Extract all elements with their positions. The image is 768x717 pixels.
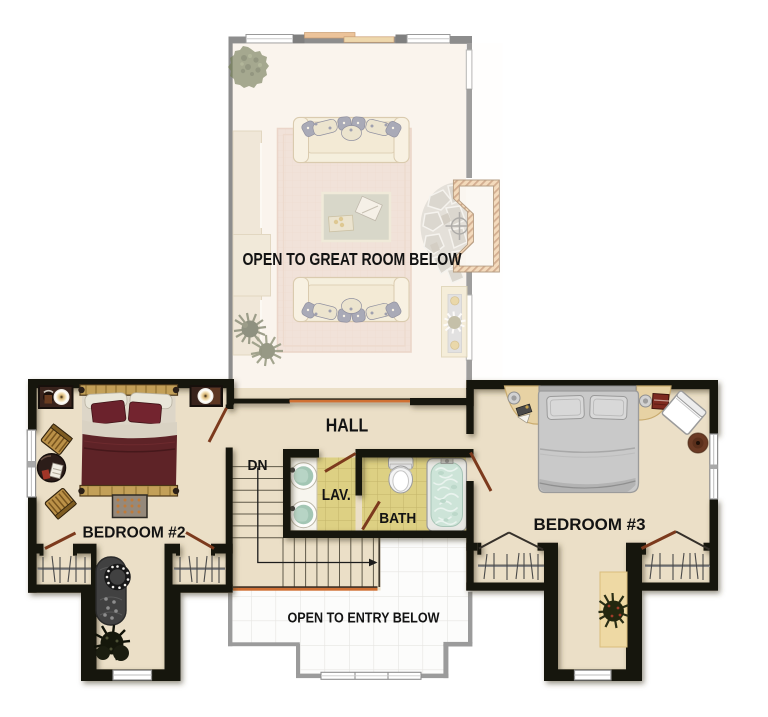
svg-text:BEDROOM #3: BEDROOM #3 (534, 516, 646, 534)
svg-text:HALL: HALL (326, 416, 369, 436)
svg-text:LAV.: LAV. (322, 487, 351, 504)
svg-text:DN: DN (248, 457, 268, 474)
svg-text:BEDROOM #2: BEDROOM #2 (83, 525, 186, 542)
svg-text:OPEN TO GREAT ROOM BELOW: OPEN TO GREAT ROOM BELOW (243, 249, 462, 269)
svg-text:OPEN TO ENTRY BELOW: OPEN TO ENTRY BELOW (288, 610, 440, 626)
svg-text:BATH: BATH (379, 511, 416, 527)
